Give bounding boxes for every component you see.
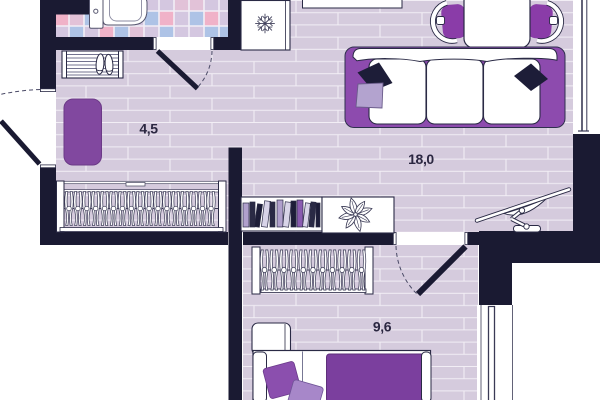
svg-text:9,6: 9,6: [373, 319, 392, 335]
svg-text:18,0: 18,0: [408, 151, 434, 167]
svg-text:4,5: 4,5: [139, 121, 158, 137]
